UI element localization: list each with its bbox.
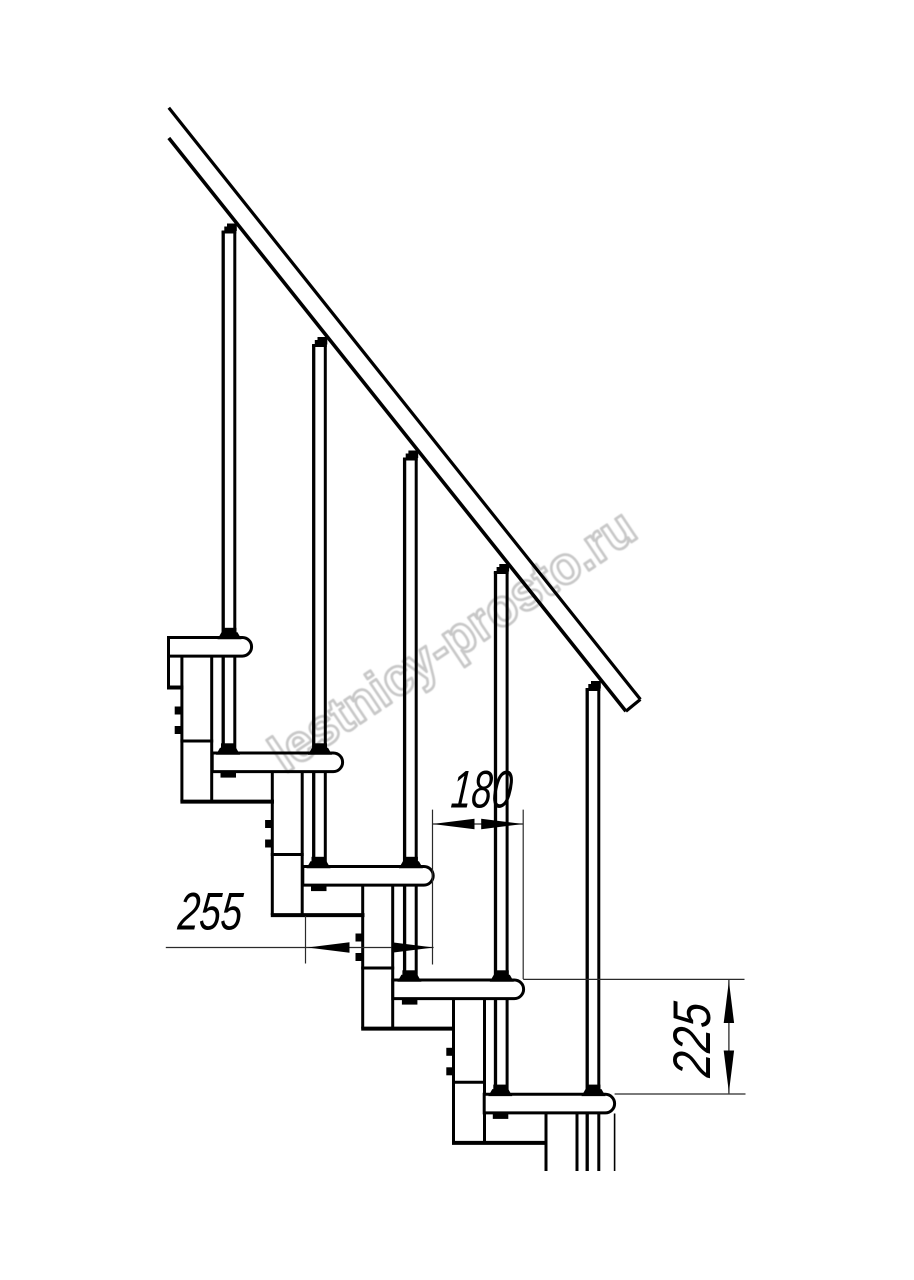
svg-text:255: 255 xyxy=(175,883,245,942)
svg-text:225: 225 xyxy=(663,1000,722,1080)
svg-text:180: 180 xyxy=(449,761,515,820)
